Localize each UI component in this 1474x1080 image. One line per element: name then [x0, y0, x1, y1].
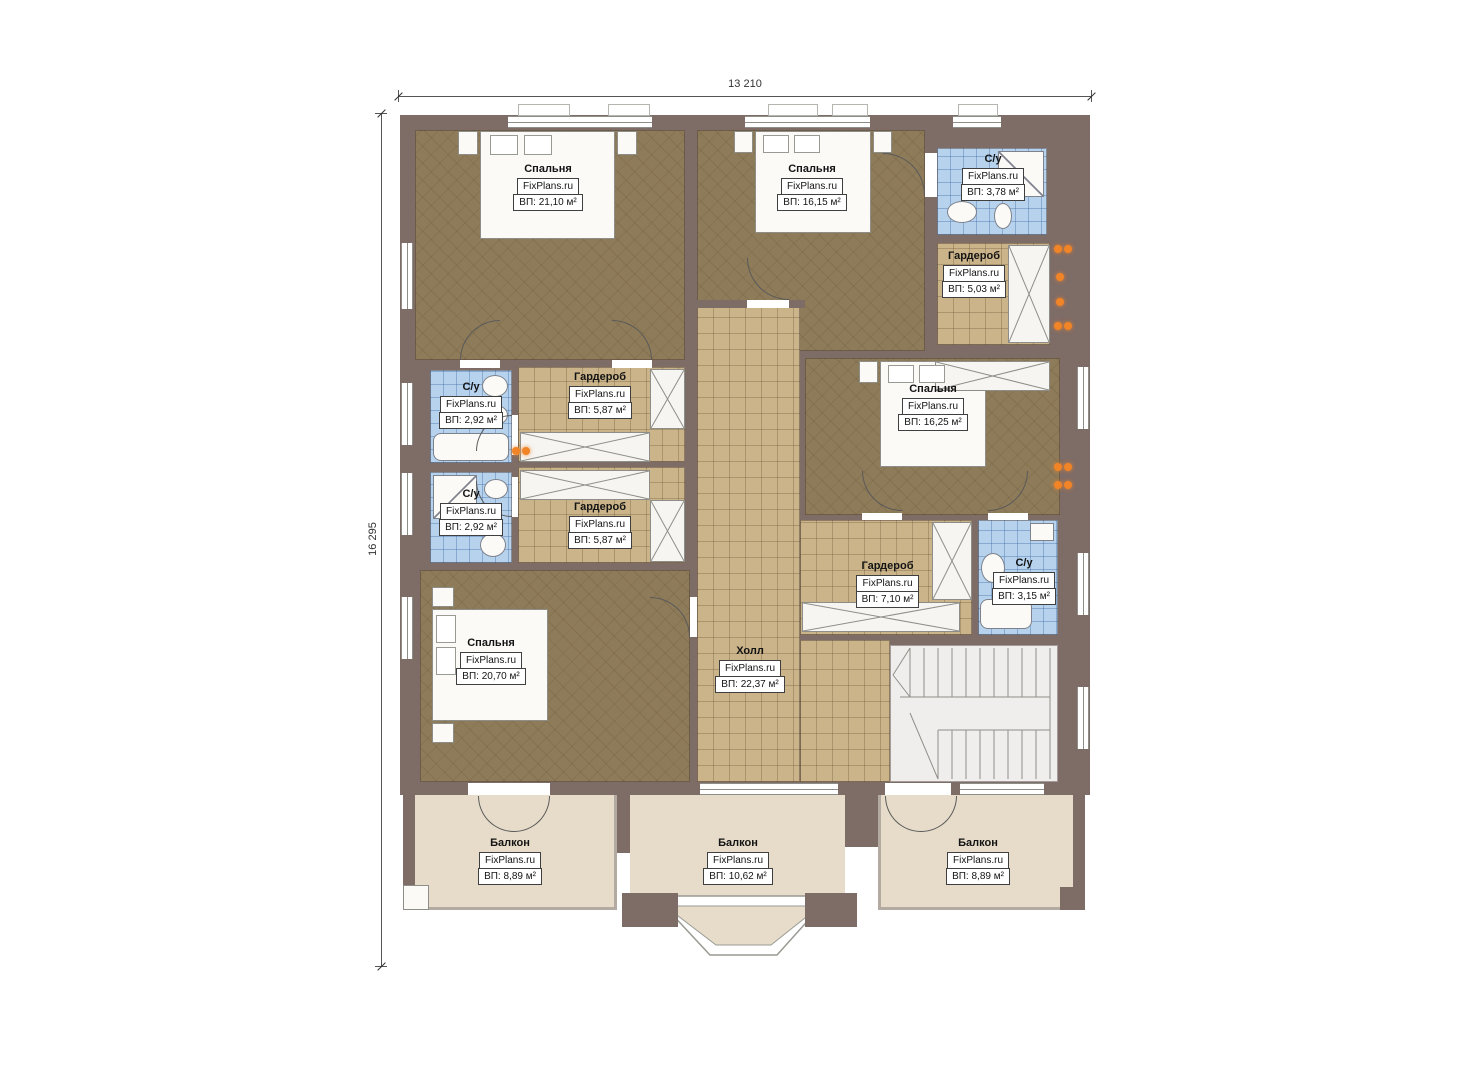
- door-gap: [612, 360, 652, 368]
- room-area: ВП: 22,37 м²: [715, 676, 784, 693]
- watermark: FixPlans.ru: [707, 852, 769, 869]
- outlet: [1054, 463, 1062, 471]
- watermark: FixPlans.ru: [993, 572, 1055, 589]
- pillow: [524, 135, 552, 155]
- balcony-step: [403, 885, 429, 910]
- room-area: ВП: 16,25 м²: [898, 414, 967, 431]
- pillow: [490, 135, 518, 155]
- pillow: [763, 135, 789, 153]
- closet: [520, 432, 650, 462]
- room-name: Гардероб: [574, 371, 626, 385]
- room-label-hall: Холл FixPlans.ru ВП: 22,37 м²: [700, 645, 800, 693]
- room-hall-column: [697, 307, 800, 782]
- watermark: FixPlans.ru: [943, 265, 1005, 282]
- room-area: ВП: 5,03 м²: [942, 281, 1006, 298]
- watermark: FixPlans.ru: [517, 178, 579, 195]
- room-name: Холл: [736, 645, 764, 659]
- watermark: FixPlans.ru: [440, 503, 502, 520]
- outlet: [1064, 463, 1072, 471]
- room-name: С/у: [984, 153, 1001, 167]
- room-label-balcony-right: Балкон FixPlans.ru ВП: 8,89 м²: [908, 837, 1048, 885]
- watermark: FixPlans.ru: [440, 396, 502, 413]
- nightstand: [859, 361, 878, 383]
- window-sill: [832, 104, 868, 116]
- watermark: FixPlans.ru: [569, 386, 631, 403]
- window: [401, 597, 413, 659]
- dimension-top-line: [398, 96, 1092, 97]
- room-label-wardrobe-middle-2: Гардероб FixPlans.ru ВП: 5,87 м²: [530, 501, 670, 549]
- wall-block: [1060, 887, 1085, 910]
- room-hall-extension: [800, 640, 890, 782]
- window: [401, 243, 413, 309]
- room-name: С/у: [462, 488, 479, 502]
- room-label-bath-left-2: С/у FixPlans.ru ВП: 2,92 м²: [426, 488, 516, 536]
- dimension-top: 13 210: [398, 79, 1092, 101]
- outlet: [1056, 273, 1064, 281]
- nightstand: [432, 587, 454, 607]
- outlet: [1064, 481, 1072, 489]
- watermark: FixPlans.ru: [781, 178, 843, 195]
- room-label-bedroom-right: Спальня FixPlans.ru ВП: 16,25 м²: [878, 383, 988, 431]
- room-area: ВП: 2,92 м²: [439, 412, 503, 429]
- window-sill: [958, 104, 998, 116]
- sink: [480, 533, 506, 557]
- watermark: FixPlans.ru: [460, 652, 522, 669]
- room-label-bedroom-bottom-left: Спальня FixPlans.ru ВП: 20,70 м²: [435, 637, 547, 685]
- window-sill: [608, 104, 650, 116]
- french-window: [700, 783, 838, 795]
- room-label-bath-left-1: С/у FixPlans.ru ВП: 2,92 м²: [426, 381, 516, 429]
- door-gap: [862, 513, 902, 520]
- outlet: [1054, 481, 1062, 489]
- room-label-balcony-middle: Балкон FixPlans.ru ВП: 10,62 м²: [668, 837, 808, 885]
- room-area: ВП: 16,15 м²: [777, 194, 846, 211]
- room-area: ВП: 21,10 м²: [513, 194, 582, 211]
- watermark: FixPlans.ru: [719, 660, 781, 677]
- outer-walls: Спальня FixPlans.ru ВП: 21,10 м² Спальня…: [400, 115, 1090, 795]
- room-label-bath-bottom-right: С/у FixPlans.ru ВП: 3,15 м²: [985, 557, 1063, 605]
- room-label-balcony-left: Балкон FixPlans.ru ВП: 8,89 м²: [440, 837, 580, 885]
- room-label-wardrobe-bottom-right: Гардероб FixPlans.ru ВП: 7,10 м²: [825, 560, 950, 608]
- room-label-bedroom-top-left: Спальня FixPlans.ru ВП: 21,10 м²: [485, 163, 611, 211]
- door-gap: [988, 513, 1028, 520]
- window: [508, 116, 652, 128]
- room-area: ВП: 8,89 м²: [946, 868, 1010, 885]
- outlet: [512, 447, 520, 455]
- room-area: ВП: 2,92 м²: [439, 519, 503, 536]
- window: [1077, 553, 1089, 615]
- window-sill: [768, 104, 818, 116]
- dimension-left-line: [381, 113, 382, 967]
- pillow: [888, 365, 914, 383]
- watermark: FixPlans.ru: [856, 575, 918, 592]
- room-name: Балкон: [958, 837, 998, 851]
- dimension-left-label: 16 295: [367, 504, 379, 574]
- room-area: ВП: 8,89 м²: [478, 868, 542, 885]
- bay-corner-block: [805, 893, 857, 927]
- window: [401, 473, 413, 535]
- room-name: С/у: [462, 381, 479, 395]
- door-gap: [747, 300, 789, 308]
- room-name: Спальня: [788, 163, 836, 177]
- nightstand: [432, 723, 454, 743]
- room-area: ВП: 7,10 м²: [856, 591, 920, 608]
- room-name: Балкон: [718, 837, 758, 851]
- sink: [994, 203, 1012, 229]
- door-gap: [690, 597, 697, 637]
- outlet: [522, 447, 530, 455]
- outlet: [1054, 322, 1062, 330]
- room-area: ВП: 3,78 м²: [961, 184, 1025, 201]
- floor-plan: 13 210 16 295: [400, 115, 1090, 965]
- room-name: Спальня: [909, 383, 957, 397]
- dimension-left: 16 295: [364, 113, 386, 967]
- room-area: ВП: 20,70 м²: [456, 668, 525, 685]
- outlet: [1064, 322, 1072, 330]
- room-name: Гардероб: [574, 501, 626, 515]
- window: [401, 383, 413, 445]
- nightstand: [458, 131, 478, 155]
- room-label-wardrobe-top-right: Гардероб FixPlans.ru ВП: 5,03 м²: [930, 250, 1018, 298]
- dimension-top-label: 13 210: [398, 78, 1092, 90]
- room-name: С/у: [1015, 557, 1032, 571]
- room-area: ВП: 10,62 м²: [703, 868, 772, 885]
- room-name: Гардероб: [862, 560, 914, 574]
- wall-stub: [845, 795, 878, 847]
- pillow: [794, 135, 820, 153]
- outlet: [1056, 298, 1064, 306]
- shelf: [1030, 523, 1054, 541]
- toilet: [947, 201, 977, 223]
- closet: [520, 470, 650, 500]
- door-gap: [468, 783, 550, 795]
- window: [1077, 687, 1089, 749]
- watermark: FixPlans.ru: [479, 852, 541, 869]
- room-area: ВП: 5,87 м²: [568, 532, 632, 549]
- door-gap: [460, 360, 500, 368]
- room-area: ВП: 5,87 м²: [568, 402, 632, 419]
- nightstand: [873, 131, 892, 153]
- room-area: ВП: 3,15 м²: [992, 588, 1056, 605]
- nightstand: [617, 131, 637, 155]
- stair-treads: [890, 645, 1058, 782]
- room-label-wardrobe-middle-1: Гардероб FixPlans.ru ВП: 5,87 м²: [530, 371, 670, 419]
- room-name: Гардероб: [948, 250, 1000, 264]
- room-label-bath-top-right: С/у FixPlans.ru ВП: 3,78 м²: [948, 153, 1038, 201]
- door-gap: [885, 783, 951, 795]
- room-name: Спальня: [467, 637, 515, 651]
- outlet: [1054, 245, 1062, 253]
- nightstand: [734, 131, 753, 153]
- outlet: [1064, 245, 1072, 253]
- watermark: FixPlans.ru: [569, 516, 631, 533]
- window: [1077, 367, 1089, 429]
- door-gap: [925, 153, 937, 197]
- room-name: Балкон: [490, 837, 530, 851]
- pillow: [919, 365, 945, 383]
- window-sill: [518, 104, 570, 116]
- room-name: Спальня: [524, 163, 572, 177]
- staircase: [890, 645, 1058, 782]
- window: [953, 116, 1001, 128]
- watermark: FixPlans.ru: [947, 852, 1009, 869]
- room-label-bedroom-top-middle: Спальня FixPlans.ru ВП: 16,15 м²: [752, 163, 872, 211]
- watermark: FixPlans.ru: [962, 168, 1024, 185]
- window: [960, 783, 1044, 795]
- floor-plan-page: 13 210 16 295: [0, 0, 1474, 1080]
- watermark: FixPlans.ru: [902, 398, 964, 415]
- bay-corner-block: [622, 893, 678, 927]
- wall-stub: [617, 795, 630, 853]
- window: [745, 116, 870, 128]
